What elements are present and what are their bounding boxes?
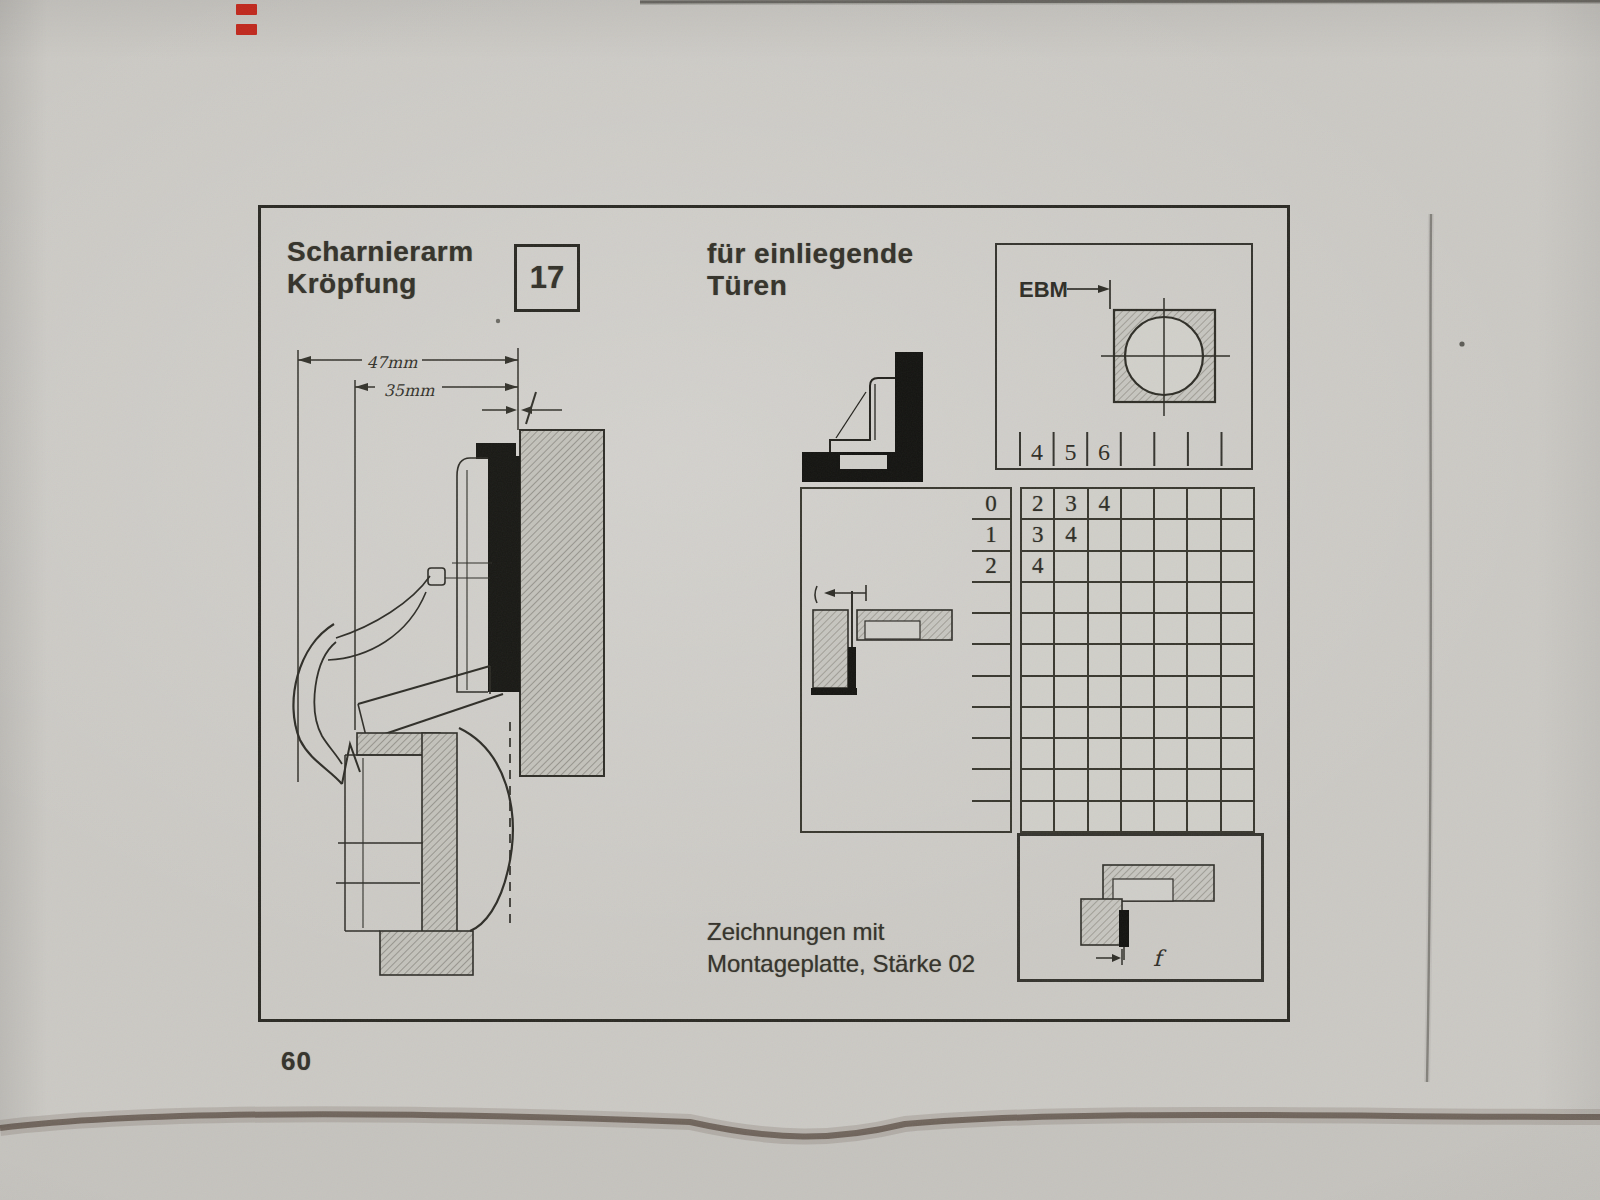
grid-cell bbox=[1155, 677, 1186, 706]
page-title-line2: Kröpfung bbox=[287, 268, 474, 300]
subtitle-line2: Türen bbox=[707, 270, 914, 302]
row-label: 2 bbox=[972, 552, 1010, 583]
grid-cell bbox=[1155, 489, 1186, 518]
grid-cell bbox=[1222, 489, 1253, 518]
dim-label-inner: 35mm bbox=[384, 381, 436, 400]
grid-cell: 3 bbox=[1022, 520, 1053, 549]
grid-cell bbox=[1122, 489, 1153, 518]
grid-cell bbox=[1122, 708, 1153, 737]
door-top-view bbox=[1081, 899, 1122, 945]
grid-cell bbox=[1089, 708, 1120, 737]
grid-cell bbox=[1122, 583, 1153, 612]
grid-cell bbox=[1188, 708, 1219, 737]
mounting-plate-side-view bbox=[802, 489, 972, 831]
grid-cell bbox=[1055, 677, 1086, 706]
ebm-label: EBM bbox=[1019, 277, 1068, 302]
grid-cell bbox=[1089, 583, 1120, 612]
hinge-cross-section-drawing: 47mm 35mm bbox=[270, 330, 640, 1000]
grid-cell bbox=[1122, 645, 1153, 674]
row-label bbox=[972, 770, 1010, 801]
grid-cell bbox=[1222, 552, 1253, 581]
grid-cell bbox=[1089, 645, 1120, 674]
grid-cell bbox=[1155, 770, 1186, 799]
door-edge-section bbox=[813, 610, 848, 688]
grid-cell bbox=[1155, 552, 1186, 581]
plan-view-box: f bbox=[1017, 833, 1264, 982]
grid-cell: 2 bbox=[1022, 489, 1053, 518]
grid-cell bbox=[1155, 645, 1186, 674]
grid-cell bbox=[1222, 583, 1253, 612]
grid-cell: 4 bbox=[1089, 489, 1120, 518]
grid-cell bbox=[1055, 552, 1086, 581]
header-cell-4: 4 bbox=[1031, 439, 1043, 465]
page-title: Scharnierarm Kröpfung bbox=[287, 236, 474, 300]
plan-view-drawing: f bbox=[1020, 836, 1261, 979]
grid-cell: 4 bbox=[1055, 520, 1086, 549]
lower-surface bbox=[0, 1114, 1600, 1200]
grid-cell bbox=[1022, 614, 1053, 643]
grid-cell bbox=[1155, 520, 1186, 549]
grid-cell bbox=[1188, 583, 1219, 612]
row-label: 1 bbox=[972, 520, 1010, 551]
grid-cell bbox=[1089, 677, 1120, 706]
subtitle-line1: für einliegende bbox=[707, 238, 914, 270]
grid-cell bbox=[1155, 708, 1186, 737]
cabinet-panel-section bbox=[520, 430, 604, 776]
caption-line1: Zeichnungen mit bbox=[707, 916, 975, 948]
grid-cell bbox=[1155, 802, 1186, 831]
grid-cell bbox=[1022, 677, 1053, 706]
row-label bbox=[972, 739, 1010, 770]
caption-line2: Montageplatte, Stärke 02 bbox=[707, 948, 975, 980]
inset-door-pictogram bbox=[778, 328, 938, 493]
grid-cell bbox=[1122, 739, 1153, 768]
grid-cell bbox=[1022, 645, 1053, 674]
grid-cell bbox=[1222, 770, 1253, 799]
dim-label-outer: 47mm bbox=[367, 353, 419, 372]
grid-cell bbox=[1188, 802, 1219, 831]
grid-cell bbox=[1188, 552, 1219, 581]
grid-cell bbox=[1122, 614, 1153, 643]
grid-cell bbox=[1122, 677, 1153, 706]
grid-cell bbox=[1089, 614, 1120, 643]
red-mark bbox=[236, 24, 257, 35]
grid-cell bbox=[1089, 770, 1120, 799]
grid-cell bbox=[1089, 739, 1120, 768]
row-label bbox=[972, 677, 1010, 708]
grid-cell bbox=[1022, 739, 1053, 768]
page-title-line1: Scharnierarm bbox=[287, 236, 474, 268]
page-number: 60 bbox=[281, 1046, 312, 1077]
grid-cell bbox=[1188, 677, 1219, 706]
grid-cell bbox=[1055, 645, 1086, 674]
grid-cell bbox=[1155, 583, 1186, 612]
grid-cell bbox=[1022, 583, 1053, 612]
row-label: 0 bbox=[972, 489, 1010, 520]
grid-cell bbox=[1122, 520, 1153, 549]
grid-cell: 3 bbox=[1055, 489, 1086, 518]
cross-reference-grid: 234344 bbox=[1020, 487, 1255, 833]
grid-cell bbox=[1055, 614, 1086, 643]
photographed-catalog-page: Scharnierarm Kröpfung 17 für einliegende… bbox=[0, 0, 1600, 1200]
header-cell-6: 6 bbox=[1098, 439, 1110, 465]
grid-cell bbox=[1222, 520, 1253, 549]
grid-cell bbox=[1122, 802, 1153, 831]
grid-cell bbox=[1155, 614, 1186, 643]
drilling-pattern-box: EBM 4 5 6 bbox=[995, 243, 1253, 470]
grid-cell bbox=[1089, 520, 1120, 549]
grid-cell bbox=[1155, 739, 1186, 768]
grid-cell bbox=[1089, 552, 1120, 581]
grid-cell bbox=[1188, 770, 1219, 799]
red-mark bbox=[236, 4, 257, 15]
grid-cell bbox=[1055, 583, 1086, 612]
row-label bbox=[972, 802, 1010, 831]
grid-cell bbox=[1055, 770, 1086, 799]
grid-cell bbox=[1055, 739, 1086, 768]
row-label bbox=[972, 645, 1010, 676]
grid-cell bbox=[1188, 645, 1219, 674]
grid-cell bbox=[1222, 708, 1253, 737]
drilling-pattern-drawing: EBM 4 5 6 bbox=[997, 245, 1251, 468]
grid-cell bbox=[1222, 677, 1253, 706]
application-box: 012 bbox=[800, 487, 1012, 833]
grid-cell bbox=[1188, 489, 1219, 518]
grid-cell bbox=[1222, 739, 1253, 768]
page-fold-line bbox=[1427, 214, 1431, 1082]
grid-cell bbox=[1188, 614, 1219, 643]
row-label bbox=[972, 583, 1010, 614]
header-cell-5: 5 bbox=[1065, 439, 1077, 465]
hinge-size-value: 17 bbox=[530, 260, 564, 296]
grid-cell bbox=[1022, 802, 1053, 831]
grid-cell bbox=[1122, 552, 1153, 581]
grid-cell: 4 bbox=[1022, 552, 1053, 581]
grid-cell bbox=[1089, 802, 1120, 831]
row-label-strip: 012 bbox=[972, 489, 1010, 831]
grid-cell bbox=[1222, 802, 1253, 831]
grid-cell bbox=[1222, 614, 1253, 643]
grid-cell bbox=[1188, 739, 1219, 768]
door-type-subtitle: für einliegende Türen bbox=[707, 238, 914, 302]
grid-cell bbox=[1055, 708, 1086, 737]
gap-dimension-label: f bbox=[1153, 946, 1167, 971]
grid-cell bbox=[1222, 645, 1253, 674]
grid-cell bbox=[1022, 770, 1053, 799]
drawing-caption: Zeichnungen mit Montageplatte, Stärke 02 bbox=[707, 916, 975, 980]
row-label bbox=[972, 708, 1010, 739]
door-section-bottom bbox=[380, 931, 473, 975]
hinge-size-box: 17 bbox=[514, 244, 580, 312]
grid-cell bbox=[1022, 708, 1053, 737]
grid-cell bbox=[1188, 520, 1219, 549]
row-label bbox=[972, 614, 1010, 645]
grid-cell bbox=[1122, 770, 1153, 799]
grid-cell bbox=[1055, 802, 1086, 831]
